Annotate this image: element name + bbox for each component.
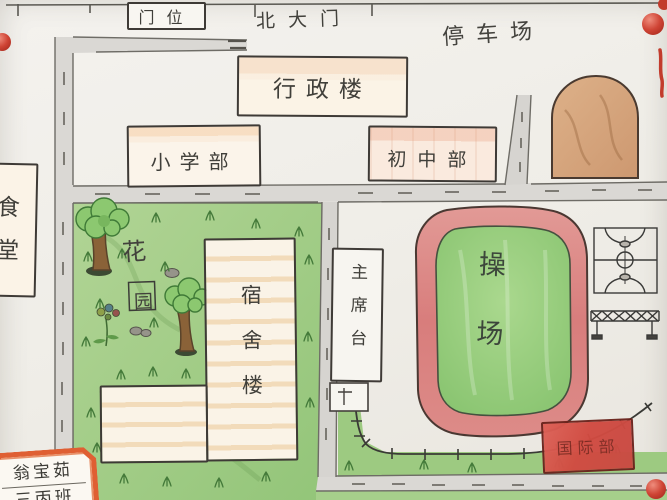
playground-label: 操场 [466,249,510,388]
rostrum-label: 主席台 [344,263,370,362]
gate-house-label: 门位 [138,4,194,28]
garden-label-char2: 园 [134,287,154,315]
international-dept-box: 国际部 [541,418,635,474]
garden-label-char1: 花 [121,231,147,268]
primary-school-building: 小学部 [127,124,262,187]
red-pushpin-icon [642,0,667,96]
gate-house-box: 门位 [127,2,206,30]
dormitory-label: 宿舍楼 [235,284,267,419]
primary-school-label: 小学部 [150,146,237,176]
red-pushpin-icon [0,33,11,51]
canteen-building: 食堂 [0,162,38,297]
rostrum-box: 主席台 [330,248,384,383]
dormitory-building: 宿舍楼 [204,237,299,461]
north-gate-label: 北大门 [256,3,353,33]
dormitory-wing [100,385,209,464]
basketball-court [594,228,657,293]
hurdle-rack [591,311,659,339]
parking-mound [552,76,638,178]
admin-building: 行政楼 [237,55,408,117]
admin-building-label: 行政楼 [273,69,372,104]
hand-drawn-school-map: 门位 北大门 停车场 行政楼 小学部 初中部 食堂 花 园 宿舍楼 主席台 操场… [0,0,667,500]
junior-high-building: 初中部 [368,125,497,182]
rostrum-steps [330,383,368,411]
red-pushpin-icon [646,479,666,499]
international-dept-label: 国际部 [556,433,620,460]
canteen-label: 食堂 [0,195,23,282]
signature-tag: 翁宝茹 三丙班 [0,446,100,500]
junior-high-label: 初中部 [387,145,477,173]
